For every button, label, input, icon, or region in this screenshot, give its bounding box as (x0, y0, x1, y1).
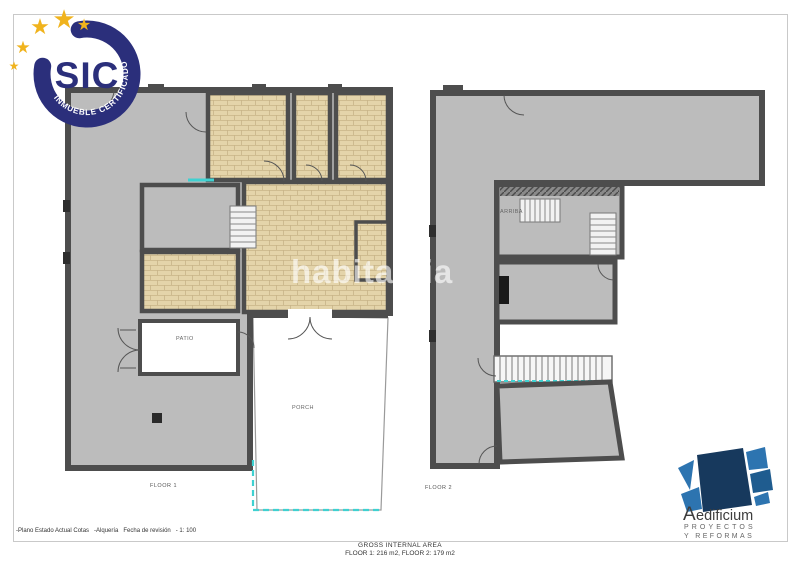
tiled-room-2 (294, 93, 330, 180)
logo-name-initial: A (683, 504, 696, 525)
area-summary: GROSS INTERNAL AREA FLOOR 1: 216 m2, FLO… (0, 542, 800, 557)
logo-line1: PROYECTOS (684, 524, 756, 531)
window-marker (63, 200, 70, 212)
window-marker (429, 330, 436, 342)
area-detail: FLOOR 1: 216 m2, FLOOR 2: 179 m2 (0, 550, 800, 557)
arriba-label: ARRIBA (500, 209, 523, 215)
watermark: habitaclia (291, 253, 453, 291)
tiled-room-1 (208, 93, 288, 180)
floor2-label: FLOOR 2 (425, 485, 452, 491)
badge-sic-text: SIC (55, 55, 120, 96)
tiled-room-4 (142, 252, 238, 311)
logo-shapes-icon (678, 447, 773, 512)
tiled-room-3 (336, 93, 388, 180)
star-icon: ★ (15, 38, 30, 57)
hatched-wall (500, 187, 619, 196)
star-icon: ★ (52, 4, 75, 34)
star-icon: ★ (30, 14, 50, 39)
star-icon: ★ (9, 59, 20, 73)
floor1-label: FLOOR 1 (150, 483, 177, 489)
column (152, 413, 162, 423)
star-icon: ★ (77, 17, 91, 34)
stairs-band (478, 356, 612, 382)
logo-line2: Y REFORMAS (684, 533, 754, 540)
arriba-room: ARRIBA (497, 185, 622, 257)
window-marker (63, 252, 70, 264)
logo-name-rest: edificium (696, 508, 753, 524)
drawing-title-note: -Plano Estado Actual Cotas -Alquería Fec… (16, 528, 196, 534)
patio-label: PATIO (176, 336, 194, 342)
area-title: GROSS INTERNAL AREA (0, 542, 800, 549)
porch-label: PORCH (292, 405, 314, 411)
sic-certificate-badge: INMUEBLE CERTIFICADO SIC ★ ★ ★ ★ ★ (0, 0, 180, 150)
wall-notch (443, 85, 463, 94)
porch: PORCH (250, 309, 388, 510)
stairs-up (525, 199, 555, 222)
window-marker (429, 225, 436, 237)
mid-room (497, 262, 615, 322)
bottom-room (497, 382, 622, 462)
aedificium-logo: A edificium PROYECTOS Y REFORMAS (660, 428, 800, 548)
gray-room (142, 185, 238, 250)
dark-panel (499, 276, 509, 304)
stairs-floor1 (230, 206, 256, 248)
